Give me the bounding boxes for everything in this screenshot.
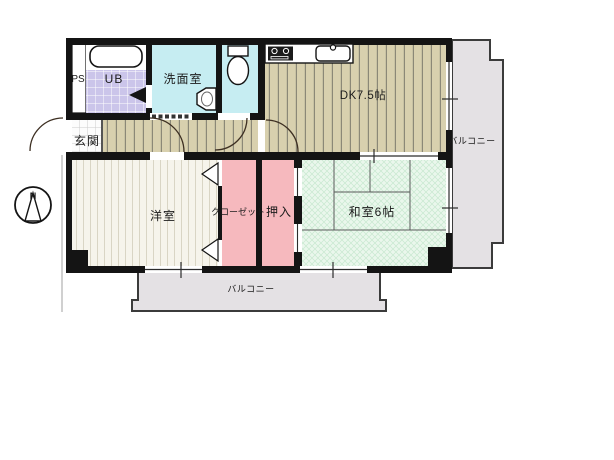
toilet-icon [228, 46, 249, 85]
bathtub-icon [90, 46, 142, 67]
entrance-door-arc [30, 118, 63, 151]
ps-label: PS [71, 74, 85, 85]
ub-label: UB [105, 72, 124, 86]
entrance-doorway [66, 120, 72, 152]
stove-icon [268, 47, 293, 61]
closet-label: クローゼット [211, 206, 265, 217]
kitchen-counter [265, 44, 353, 63]
floorplan-canvas: N PS UB 洗面室 玄関 DK7.5帖 バルコニー 洋室 クローゼット 押入… [0, 0, 614, 460]
japanese-room-label: 和室6帖 [349, 204, 396, 219]
ub-doorway [146, 85, 152, 108]
entrance-label: 玄関 [74, 133, 100, 148]
room-western [72, 160, 218, 266]
balcony-right [452, 40, 503, 268]
western-doorway [150, 152, 184, 160]
toilet-doorway [218, 113, 250, 120]
dk-doorway [258, 120, 265, 152]
kitchen-sink-icon [316, 45, 350, 61]
western-room-label: 洋室 [150, 208, 176, 223]
washbasin-icon [197, 88, 216, 110]
compass-icon: N [15, 187, 51, 223]
oshiire-label: 押入 [266, 205, 292, 219]
washroom-label: 洗面室 [163, 71, 202, 86]
balcony-right-label: バルコニー [448, 136, 495, 146]
entrance-step-edge [101, 120, 103, 152]
dk-label: DK7.5帖 [340, 88, 386, 102]
floorplan-drawing: N PS UB 洗面室 玄関 DK7.5帖 バルコニー 洋室 クローゼット 押入… [0, 0, 614, 460]
compass-north-label: N [30, 191, 37, 201]
balcony-bottom-label: バルコニー [227, 284, 274, 294]
